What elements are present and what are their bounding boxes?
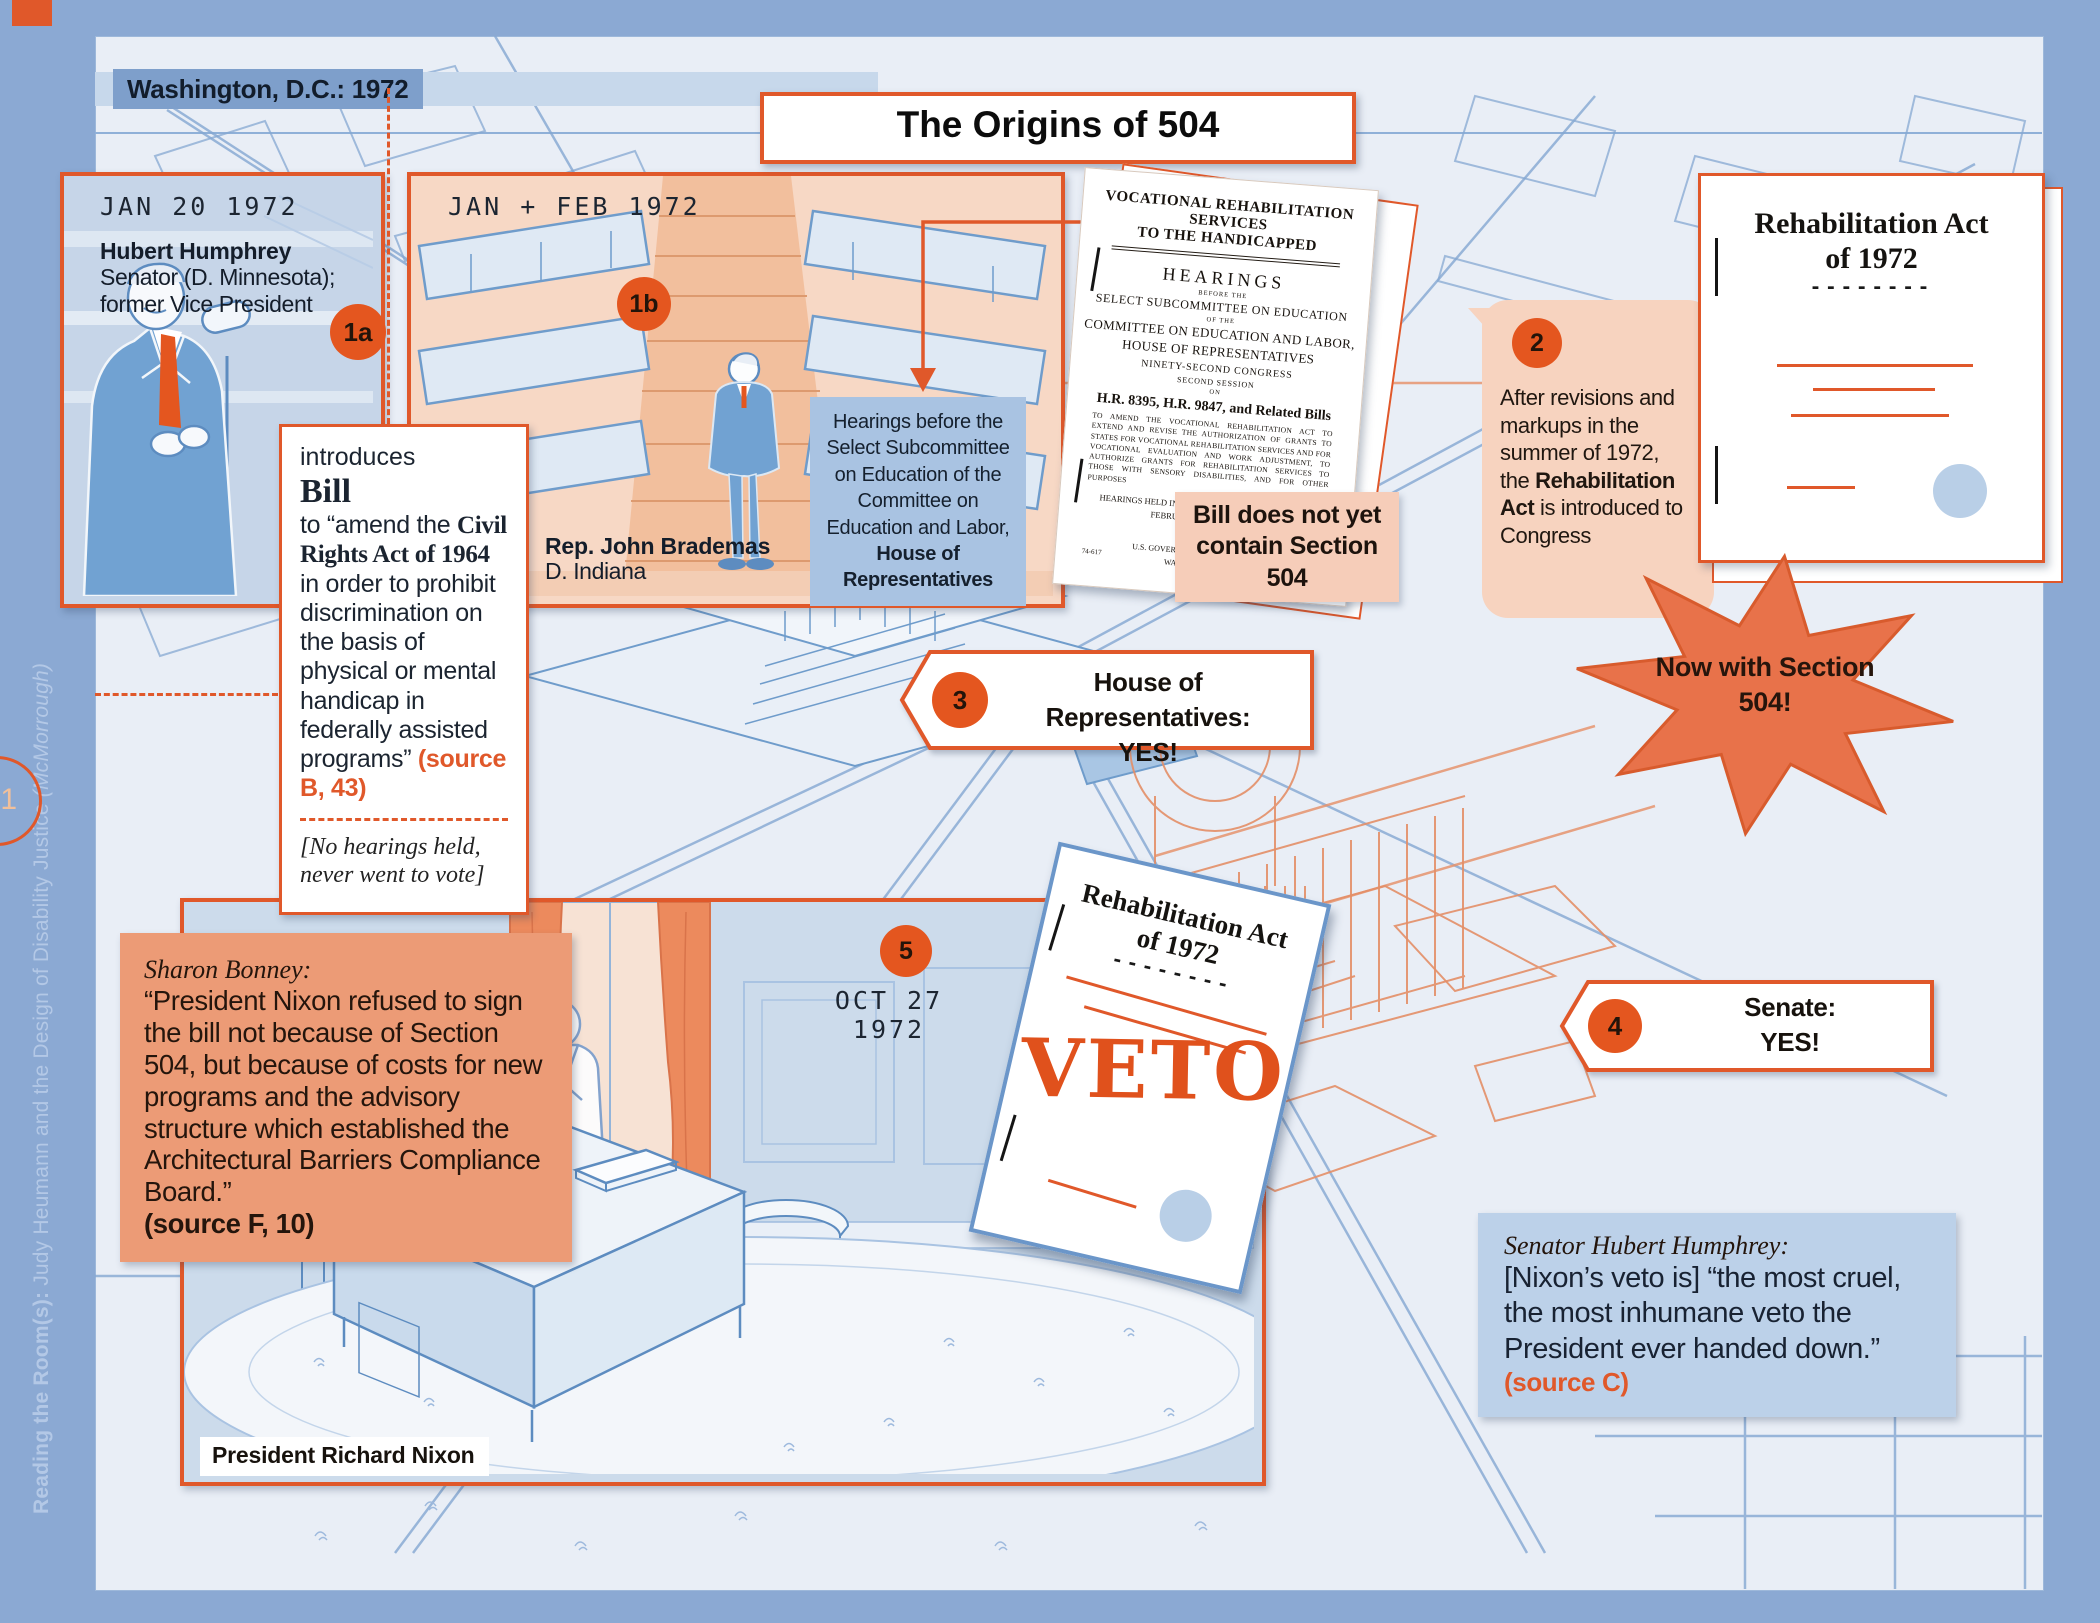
bill-description-box: introduces Bill to “amend the Civil Righ…: [279, 424, 529, 915]
starburst-now-with-504: Now with Section 504!: [1565, 545, 1965, 845]
staple-icon: [1000, 1114, 1017, 1161]
starburst-text: Now with Section 504!: [1635, 650, 1895, 720]
person-name-humphrey: Hubert Humphrey: [100, 238, 291, 265]
badge-2: 2: [1512, 318, 1562, 368]
step3-line1: House of Representatives:: [998, 665, 1298, 735]
badge-3: 3: [932, 672, 988, 728]
step4-line2: YES!: [1660, 1025, 1920, 1060]
badge-5: 5: [880, 925, 932, 977]
humphrey-quote-box: Senator Hubert Humphrey: [Nixon’s veto i…: [1478, 1213, 1956, 1417]
redacted-line: [1813, 388, 1935, 391]
page-number: 1: [0, 783, 17, 817]
seal-icon: [1933, 464, 1987, 518]
person-label-nixon: President Richard Nixon: [200, 1437, 489, 1476]
bill-body-post: in order to prohibit discrimination on t…: [300, 570, 496, 774]
humphrey-attribution: Senator Hubert Humphrey:: [1504, 1231, 1930, 1261]
act-doc-title1: Rehabilitation Act: [1701, 206, 2042, 242]
location-label: Washington, D.C.: 1972: [113, 69, 423, 109]
starburst-line2: 504!: [1635, 685, 1895, 720]
badge-1a: 1a: [330, 304, 386, 360]
page-title: The Origins of 504: [760, 92, 1356, 164]
date-5: OCT 27 1972: [804, 986, 974, 1044]
bill-body: to “amend the Civil Rights Act of 1964 i…: [300, 511, 508, 804]
staple-icon: [1715, 446, 1718, 504]
bonney-quote-source: (source F, 10): [144, 1208, 548, 1240]
date-1a: JAN 20 1972: [100, 192, 299, 221]
humphrey-quote-source: (source C): [1504, 1367, 1930, 1399]
step3-line2: YES!: [998, 735, 1298, 770]
infographic-origins-of-504: Reading the Room(s): Judy Heumann and th…: [0, 0, 2100, 1623]
bill-divider: [300, 818, 508, 821]
staple-icon: [1715, 238, 1718, 296]
signature-line: [1787, 486, 1855, 489]
act-doc-dashes: --------: [1701, 276, 2042, 298]
bonney-quote-box: Sharon Bonney: “President Nixon refused …: [120, 933, 572, 1262]
person-name-brademas: Rep. John Brademas: [545, 533, 770, 560]
humphrey-quote-text: [Nixon’s veto is] “the most cruel, the m…: [1504, 1261, 1930, 1367]
bonney-quote-text: “President Nixon refused to sign the bil…: [144, 985, 548, 1208]
person-title-humphrey: Senator (D. Minnesota); former Vice Pres…: [100, 264, 380, 318]
signature-line: [1048, 1179, 1137, 1209]
hearings-doc-number: 74-617: [1081, 547, 1101, 557]
bubble-tail: [1468, 308, 1502, 346]
seal-icon: [1154, 1185, 1216, 1247]
spine-title-bold: Reading the Room(s):: [30, 1286, 53, 1514]
person-title-brademas: D. Indiana: [545, 558, 646, 585]
bill-note: [No hearings held, never went to vote]: [300, 833, 508, 891]
redacted-line: [1777, 364, 1973, 367]
note-504-line1: Bill does not yet: [1179, 500, 1395, 531]
veto-stamp: VETO: [1003, 1020, 1305, 1119]
bill-intro: introduces: [300, 443, 508, 472]
corner-mark: [12, 0, 52, 26]
spine-title-main: Judy Heumann and the Design of Disabilit…: [30, 797, 53, 1286]
badge-1b: 1b: [617, 277, 671, 331]
step-2-text: After revisions and markups in the summe…: [1500, 384, 1686, 549]
step4-line1: Senate:: [1660, 990, 1920, 1025]
step-4-text: Senate: YES!: [1660, 990, 1920, 1060]
bonney-attribution: Sharon Bonney:: [144, 955, 548, 985]
note-no-section-504: Bill does not yet contain Section 504: [1175, 492, 1399, 602]
starburst-line1: Now with Section: [1635, 650, 1895, 685]
rehabilitation-act-document: Rehabilitation Act of 1972 --------: [1698, 173, 2045, 563]
hearings-note: Hearings before the Select Subcommittee …: [810, 397, 1026, 606]
badge-4: 4: [1588, 999, 1642, 1053]
step-3-text: House of Representatives: YES!: [998, 665, 1298, 770]
timeline-dashed-divider-horizontal: [95, 693, 278, 696]
redacted-line: [1791, 414, 1949, 417]
note-504-line2: contain Section 504: [1179, 531, 1395, 594]
hearings-note-text: Hearings before the Select Subcommittee …: [826, 411, 1009, 539]
bill-body-pre: to “amend the: [300, 511, 457, 539]
bill-heading: Bill: [300, 472, 508, 511]
date-1b: JAN + FEB 1972: [448, 192, 701, 221]
hearings-note-bold: House of Representatives: [843, 543, 993, 591]
timeline-dashed-divider-vertical: [387, 88, 390, 424]
act-doc-title2: of 1972: [1701, 242, 2042, 276]
